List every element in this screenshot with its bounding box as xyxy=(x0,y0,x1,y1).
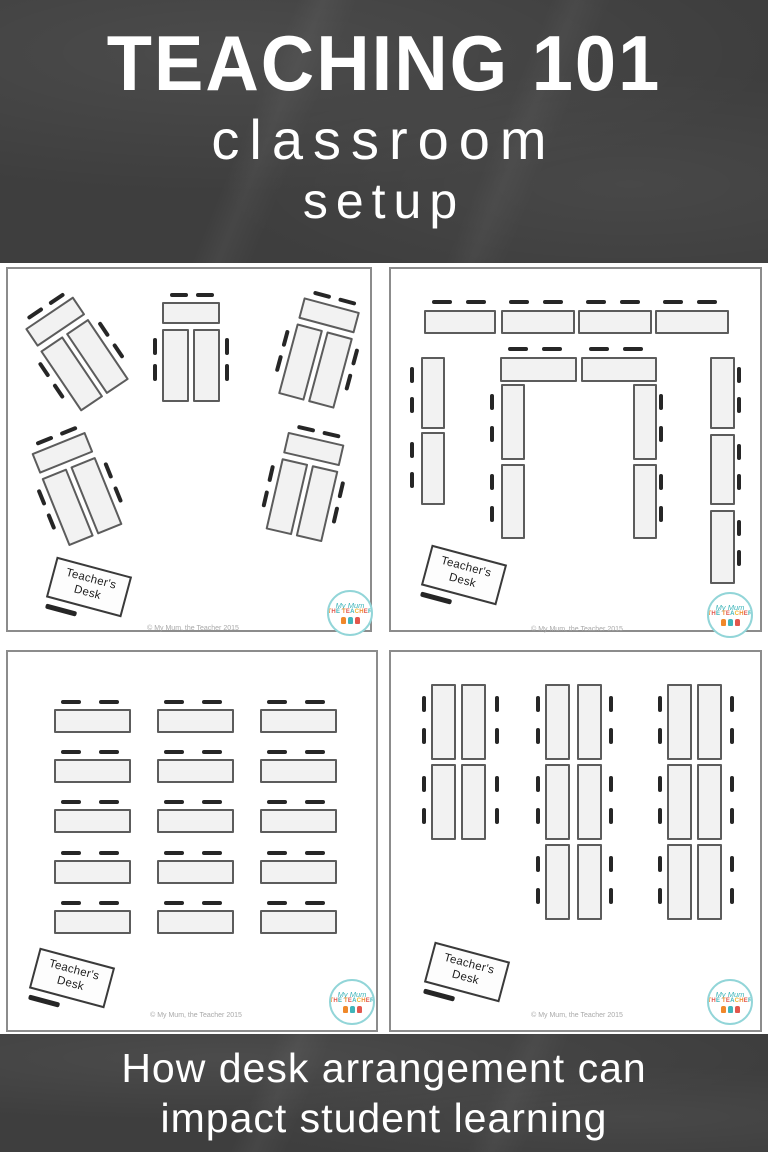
chair-dash xyxy=(609,856,613,872)
chair-dash xyxy=(509,300,529,304)
chair-dash xyxy=(422,776,426,792)
student-desk xyxy=(578,310,652,334)
caption-line-2: impact student learning xyxy=(0,1093,768,1143)
chair-dash xyxy=(282,330,290,347)
chair-dash xyxy=(322,431,340,439)
chair-dash xyxy=(495,696,499,712)
chair-dash xyxy=(658,888,662,904)
pin-graphic: TEACHING 101 classroom setup Teacher'sDe… xyxy=(0,0,768,1152)
chair-dash xyxy=(46,513,56,530)
chair-dash xyxy=(495,808,499,824)
brand-logo-name: My Mum xyxy=(338,991,367,999)
kid-figure-icon xyxy=(735,619,740,626)
chair-dash xyxy=(267,700,287,704)
student-desk xyxy=(633,384,657,460)
chair-dash xyxy=(275,355,283,372)
chair-dash xyxy=(543,300,563,304)
student-desk xyxy=(162,329,189,402)
brand-logo-name: My Mum xyxy=(336,602,365,610)
student-desk xyxy=(667,684,692,760)
chair-dash xyxy=(261,490,269,507)
chair-dash xyxy=(153,338,157,355)
desk-pod xyxy=(162,302,220,402)
chair-dash xyxy=(730,808,734,824)
chair-dash xyxy=(536,728,540,744)
chair-dash xyxy=(99,800,119,804)
teacher-chair-dash xyxy=(45,604,77,617)
student-desk xyxy=(461,764,486,840)
kid-figure-icon xyxy=(357,1006,362,1013)
desk-pod xyxy=(31,432,122,546)
chair-dash xyxy=(202,700,222,704)
chair-dash xyxy=(536,808,540,824)
student-desk xyxy=(501,384,525,460)
chair-dash xyxy=(99,750,119,754)
student-desk xyxy=(577,844,602,920)
chair-dash xyxy=(267,901,287,905)
kid-figure-icon xyxy=(341,617,346,624)
student-desk xyxy=(667,844,692,920)
student-desk xyxy=(260,709,337,733)
chair-dash xyxy=(495,776,499,792)
student-desk xyxy=(431,764,456,840)
student-desk xyxy=(697,844,722,920)
chair-dash xyxy=(267,750,287,754)
chair-dash xyxy=(495,728,499,744)
chair-dash xyxy=(623,347,643,351)
student-desk xyxy=(54,709,131,733)
chair-dash xyxy=(490,506,494,522)
chalkboard-footer: How desk arrangement can impact student … xyxy=(0,1034,768,1152)
student-desk xyxy=(260,910,337,934)
chair-dash xyxy=(658,728,662,744)
chair-dash xyxy=(99,901,119,905)
chair-dash xyxy=(164,700,184,704)
chair-dash xyxy=(351,348,359,365)
chair-dash xyxy=(305,800,325,804)
chair-dash xyxy=(730,856,734,872)
brand-logo-tagline: THE TEACHER xyxy=(708,998,753,1005)
student-desk xyxy=(54,809,131,833)
chair-dash xyxy=(225,338,229,355)
desk-pod xyxy=(265,432,344,542)
teacher-desk: Teacher'sDesk xyxy=(420,942,510,1016)
student-desk xyxy=(633,464,657,539)
teacher-desk: Teacher'sDesk xyxy=(42,557,132,631)
brand-logo-kids-illustration xyxy=(343,1006,362,1013)
student-desk xyxy=(157,910,234,934)
student-desk xyxy=(710,357,735,429)
chair-dash xyxy=(267,800,287,804)
student-desk xyxy=(710,510,735,584)
brand-logo-name: My Mum xyxy=(716,991,745,999)
brand-logo-badge: My MumTHE TEACHER xyxy=(327,590,373,636)
chair-dash xyxy=(305,901,325,905)
chair-dash xyxy=(589,347,609,351)
layout-panel-double-horseshoe: Teacher'sDeskMy MumTHE TEACHER© My Mum, … xyxy=(389,267,762,632)
copyright-text: © My Mum, the Teacher 2015 xyxy=(487,625,667,635)
student-desk xyxy=(545,844,570,920)
chair-dash xyxy=(103,462,113,479)
chair-dash xyxy=(609,808,613,824)
chair-dash xyxy=(737,550,741,566)
chair-dash xyxy=(313,291,331,300)
chair-dash xyxy=(697,300,717,304)
chair-dash xyxy=(490,426,494,442)
chair-dash xyxy=(164,901,184,905)
chair-dash xyxy=(609,888,613,904)
chair-dash xyxy=(164,851,184,855)
student-desk xyxy=(431,684,456,760)
kid-figure-icon xyxy=(728,1006,733,1013)
chair-dash xyxy=(332,506,340,523)
chair-dash xyxy=(659,506,663,522)
student-desk xyxy=(577,764,602,840)
chair-dash xyxy=(37,489,47,506)
chair-dash xyxy=(61,901,81,905)
chair-dash xyxy=(730,888,734,904)
student-desk xyxy=(697,764,722,840)
chair-dash xyxy=(658,776,662,792)
student-desk xyxy=(193,329,220,402)
chair-dash xyxy=(61,800,81,804)
student-desk xyxy=(157,759,234,783)
chair-dash xyxy=(196,293,214,297)
chair-dash xyxy=(658,808,662,824)
chair-dash xyxy=(61,851,81,855)
chair-dash xyxy=(305,700,325,704)
brand-logo-badge: My MumTHE TEACHER xyxy=(707,592,753,638)
student-desk xyxy=(577,684,602,760)
chair-dash xyxy=(61,750,81,754)
teacher-chair-dash xyxy=(420,592,452,605)
copyright-text: © My Mum, the Teacher 2015 xyxy=(103,624,283,634)
copyright-text: © My Mum, the Teacher 2015 xyxy=(487,1011,667,1021)
chair-dash xyxy=(737,444,741,460)
chair-dash xyxy=(508,347,528,351)
student-desk xyxy=(162,302,220,324)
chair-dash xyxy=(609,728,613,744)
chair-dash xyxy=(170,293,188,297)
chair-dash xyxy=(730,776,734,792)
teacher-desk: Teacher'sDesk xyxy=(417,545,507,619)
chair-dash xyxy=(153,364,157,381)
kid-figure-icon xyxy=(728,619,733,626)
student-desk xyxy=(501,464,525,539)
student-desk xyxy=(461,684,486,760)
chair-dash xyxy=(113,486,123,503)
chair-dash xyxy=(536,776,540,792)
chair-dash xyxy=(337,481,345,498)
desk-pod xyxy=(278,297,360,409)
student-desk xyxy=(260,759,337,783)
student-desk xyxy=(710,434,735,505)
student-desk xyxy=(157,709,234,733)
chair-dash xyxy=(267,465,275,482)
chair-dash xyxy=(609,776,613,792)
panels-band: Teacher'sDeskMy MumTHE TEACHER© My Mum, … xyxy=(0,263,768,1034)
subtitle-classroom: classroom xyxy=(0,112,768,168)
chair-dash xyxy=(164,750,184,754)
kid-figure-icon xyxy=(350,1006,355,1013)
student-desk xyxy=(424,310,496,334)
chair-dash xyxy=(490,394,494,410)
chair-dash xyxy=(609,696,613,712)
kid-figure-icon xyxy=(721,619,726,626)
chair-dash xyxy=(305,750,325,754)
chair-dash xyxy=(737,520,741,536)
chair-dash xyxy=(61,700,81,704)
brand-logo-kids-illustration xyxy=(721,1006,740,1013)
teacher-chair-dash xyxy=(28,995,60,1008)
chalkboard-header: TEACHING 101 classroom setup xyxy=(0,0,768,263)
brand-logo-badge: My MumTHE TEACHER xyxy=(329,979,375,1025)
chair-dash xyxy=(536,856,540,872)
student-desk xyxy=(545,764,570,840)
student-desk xyxy=(421,432,445,505)
student-desk xyxy=(500,357,577,382)
brand-logo-tagline: THE TEACHER xyxy=(328,609,373,616)
chair-dash xyxy=(422,808,426,824)
subtitle-setup: setup xyxy=(0,176,768,226)
brand-logo-tagline: THE TEACHER xyxy=(330,998,375,1005)
student-desk xyxy=(581,357,657,382)
chair-dash xyxy=(432,300,452,304)
chair-dash xyxy=(338,297,356,306)
kid-figure-icon xyxy=(348,617,353,624)
student-desk xyxy=(54,759,131,783)
layout-panel-angled-pods: Teacher'sDeskMy MumTHE TEACHER© My Mum, … xyxy=(6,267,372,632)
chair-dash xyxy=(620,300,640,304)
teacher-chair-dash xyxy=(423,989,455,1002)
brand-logo-badge: My MumTHE TEACHER xyxy=(707,979,753,1025)
copyright-text: © My Mum, the Teacher 2015 xyxy=(106,1011,286,1021)
student-desk xyxy=(260,860,337,884)
chair-dash xyxy=(344,373,352,390)
kid-figure-icon xyxy=(735,1006,740,1013)
student-desk xyxy=(260,809,337,833)
chair-dash xyxy=(297,425,315,433)
chair-dash xyxy=(737,367,741,383)
chair-dash xyxy=(658,696,662,712)
brand-logo-kids-illustration xyxy=(721,619,740,626)
chair-dash xyxy=(536,696,540,712)
chair-dash xyxy=(730,696,734,712)
student-desk xyxy=(667,764,692,840)
student-desk xyxy=(157,809,234,833)
chair-dash xyxy=(202,901,222,905)
chair-dash xyxy=(542,347,562,351)
page-title: TEACHING 101 xyxy=(0,0,768,103)
student-desk xyxy=(54,910,131,934)
student-desk xyxy=(421,357,445,429)
kid-figure-icon xyxy=(721,1006,726,1013)
student-desk xyxy=(54,860,131,884)
chair-dash xyxy=(730,728,734,744)
chair-dash xyxy=(737,397,741,413)
chair-dash xyxy=(267,851,287,855)
brand-logo-name: My Mum xyxy=(716,604,745,612)
chair-dash xyxy=(659,474,663,490)
chair-dash xyxy=(410,472,414,488)
layout-panel-traditional-rows: Teacher'sDeskMy MumTHE TEACHER© My Mum, … xyxy=(6,650,378,1032)
chair-dash xyxy=(410,367,414,383)
student-desk xyxy=(697,684,722,760)
student-desk xyxy=(545,684,570,760)
chair-dash xyxy=(659,426,663,442)
chair-dash xyxy=(466,300,486,304)
chair-dash xyxy=(659,394,663,410)
student-desk xyxy=(655,310,729,334)
chair-dash xyxy=(202,800,222,804)
brand-logo-kids-illustration xyxy=(341,617,360,624)
chair-dash xyxy=(305,851,325,855)
chair-dash xyxy=(422,728,426,744)
chair-dash xyxy=(202,851,222,855)
chair-dash xyxy=(658,856,662,872)
chair-dash xyxy=(410,442,414,458)
chair-dash xyxy=(164,800,184,804)
brand-logo-tagline: THE TEACHER xyxy=(708,611,753,618)
teacher-desk: Teacher'sDesk xyxy=(25,948,115,1022)
chair-dash xyxy=(422,696,426,712)
chair-dash xyxy=(202,750,222,754)
kid-figure-icon xyxy=(343,1006,348,1013)
chair-dash xyxy=(586,300,606,304)
desk-pod xyxy=(25,296,129,411)
caption-line-1: How desk arrangement can xyxy=(0,1043,768,1093)
student-desk xyxy=(157,860,234,884)
chair-dash xyxy=(99,700,119,704)
chair-dash xyxy=(99,851,119,855)
layout-panel-paired-columns: Teacher'sDeskMy MumTHE TEACHER© My Mum, … xyxy=(389,650,762,1032)
kid-figure-icon xyxy=(355,617,360,624)
student-desk xyxy=(501,310,575,334)
chair-dash xyxy=(663,300,683,304)
chair-dash xyxy=(490,474,494,490)
chair-dash xyxy=(737,474,741,490)
chair-dash xyxy=(536,888,540,904)
chair-dash xyxy=(410,397,414,413)
chair-dash xyxy=(225,364,229,381)
